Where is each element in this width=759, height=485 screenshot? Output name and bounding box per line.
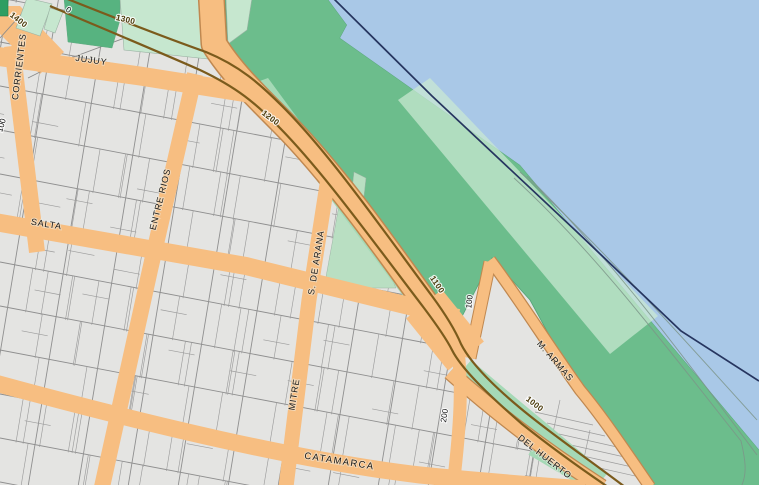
street-junction: [424, 304, 466, 356]
marker-label-100: 100: [464, 294, 474, 309]
map-viewport[interactable]: CORRIENTES JUJUY ENTRE RIOS SALTA S. DE …: [0, 0, 759, 485]
small-park-square: [0, 0, 8, 16]
street-200: [453, 350, 460, 485]
map-canvas[interactable]: CORRIENTES JUJUY ENTRE RIOS SALTA S. DE …: [0, 0, 759, 485]
